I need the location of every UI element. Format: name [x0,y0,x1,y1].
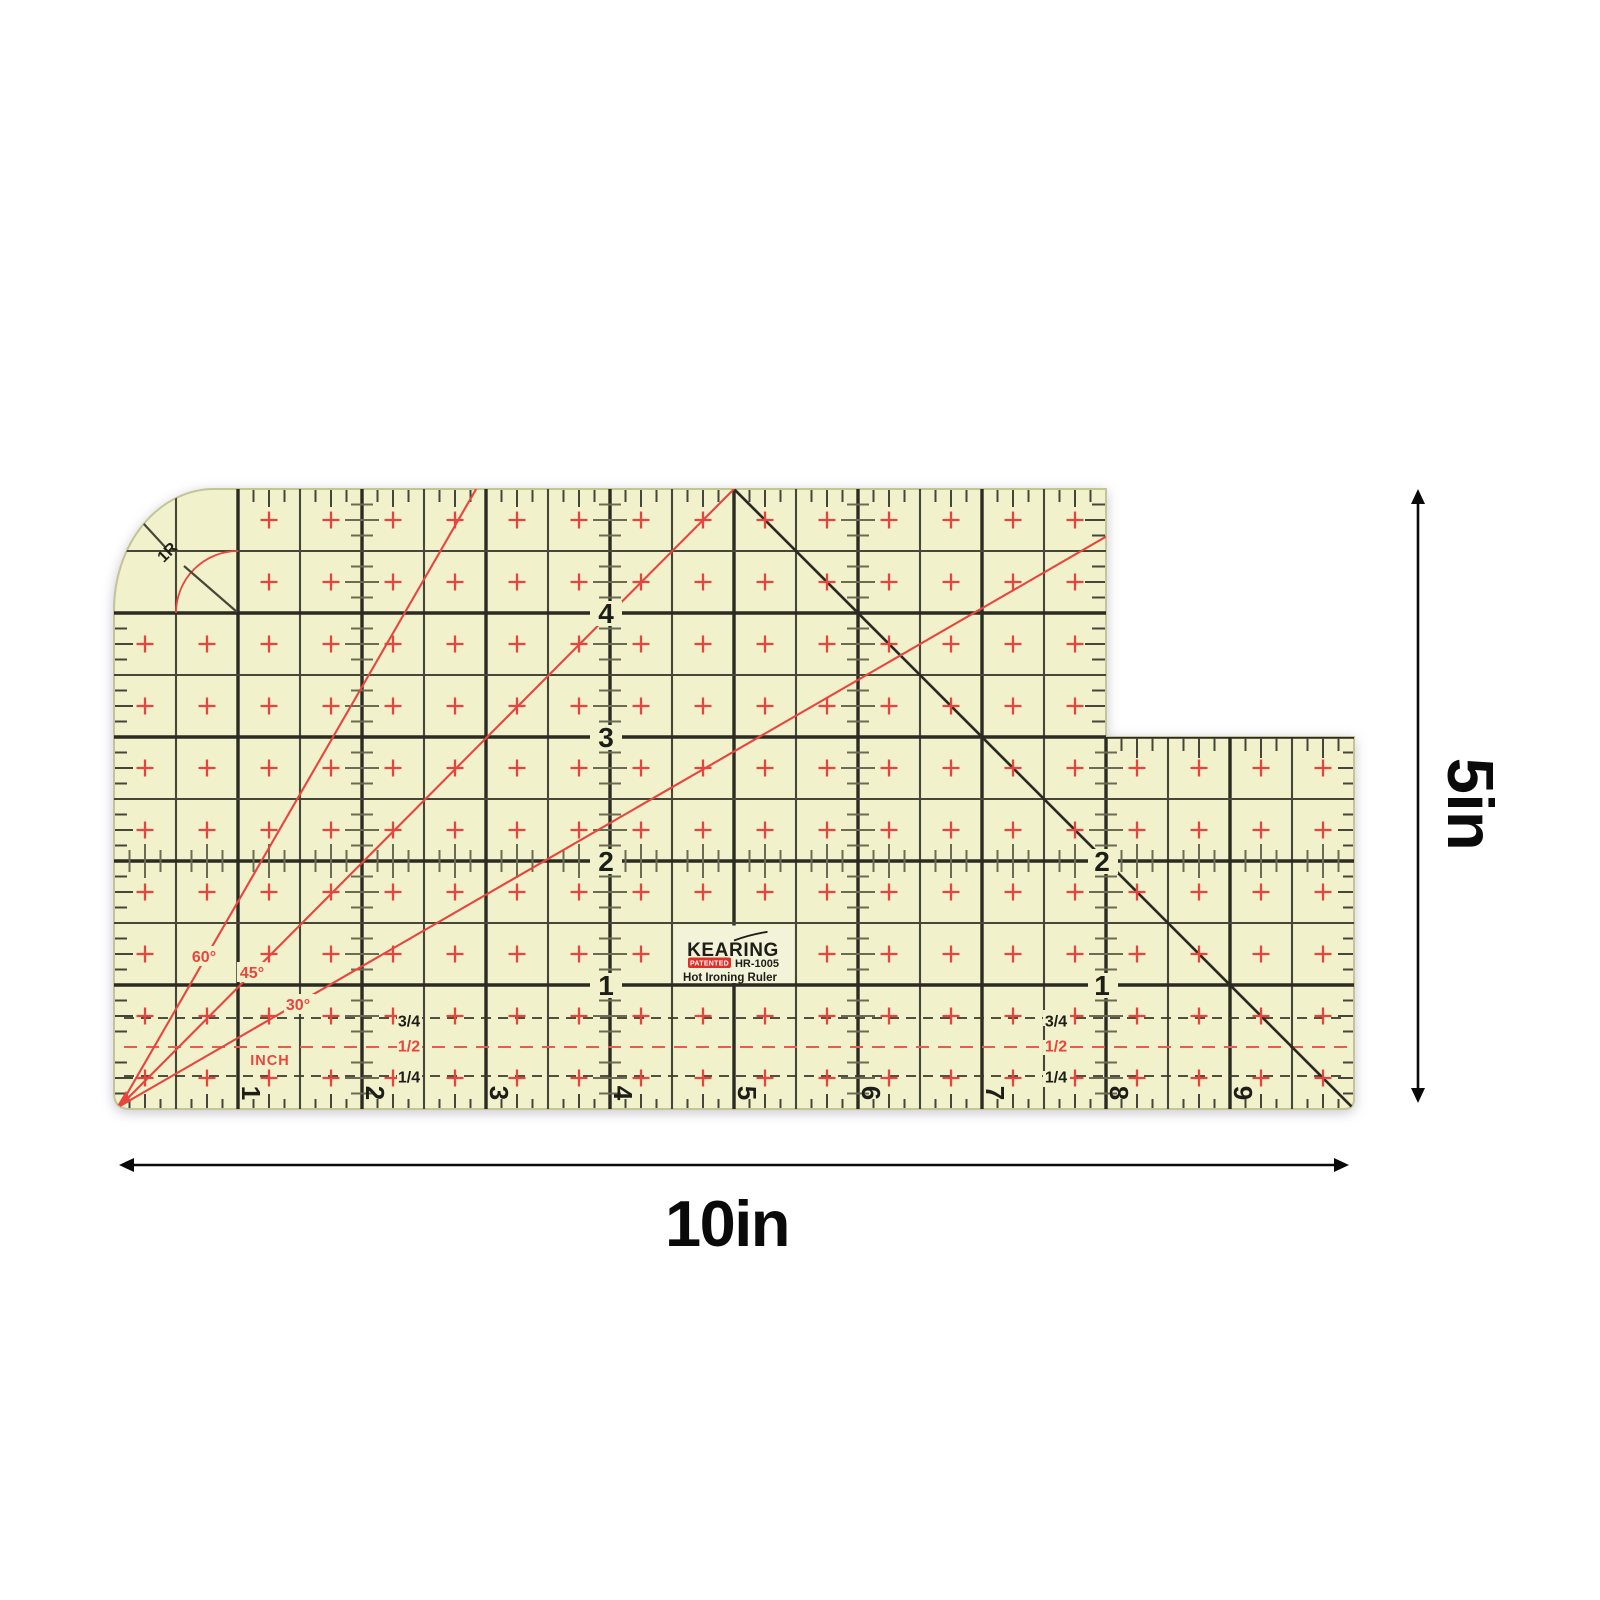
svg-text:45°: 45° [240,965,264,982]
svg-text:10in: 10in [665,1187,789,1260]
svg-text:Hot Ironing Ruler: Hot Ironing Ruler [683,972,777,984]
svg-text:3: 3 [598,722,614,753]
svg-text:1: 1 [598,970,614,1001]
svg-text:2: 2 [1094,846,1110,877]
svg-text:3/4: 3/4 [1045,1014,1067,1031]
svg-text:4: 4 [598,598,614,629]
svg-text:1/2: 1/2 [398,1039,420,1056]
svg-text:2: 2 [360,1086,390,1100]
svg-text:2: 2 [598,846,614,877]
svg-text:6: 6 [856,1086,886,1100]
svg-text:3/4: 3/4 [398,1014,420,1031]
svg-text:8: 8 [1104,1086,1134,1100]
svg-text:1: 1 [236,1086,266,1100]
svg-text:1: 1 [1094,970,1110,1001]
svg-text:1/2: 1/2 [1045,1039,1067,1056]
svg-text:4: 4 [608,1086,638,1101]
svg-text:INCH: INCH [250,1053,289,1069]
svg-text:5in: 5in [1434,758,1507,850]
svg-text:30°: 30° [286,997,310,1014]
svg-text:HR-1005: HR-1005 [735,958,779,970]
svg-text:1/4: 1/4 [1045,1070,1067,1087]
svg-text:5: 5 [732,1086,762,1100]
svg-text:60°: 60° [192,949,216,966]
svg-text:7: 7 [980,1086,1010,1100]
svg-text:3: 3 [484,1086,514,1100]
svg-text:9: 9 [1228,1086,1258,1100]
svg-text:PATENTED: PATENTED [690,961,729,968]
svg-text:1/4: 1/4 [398,1070,420,1087]
